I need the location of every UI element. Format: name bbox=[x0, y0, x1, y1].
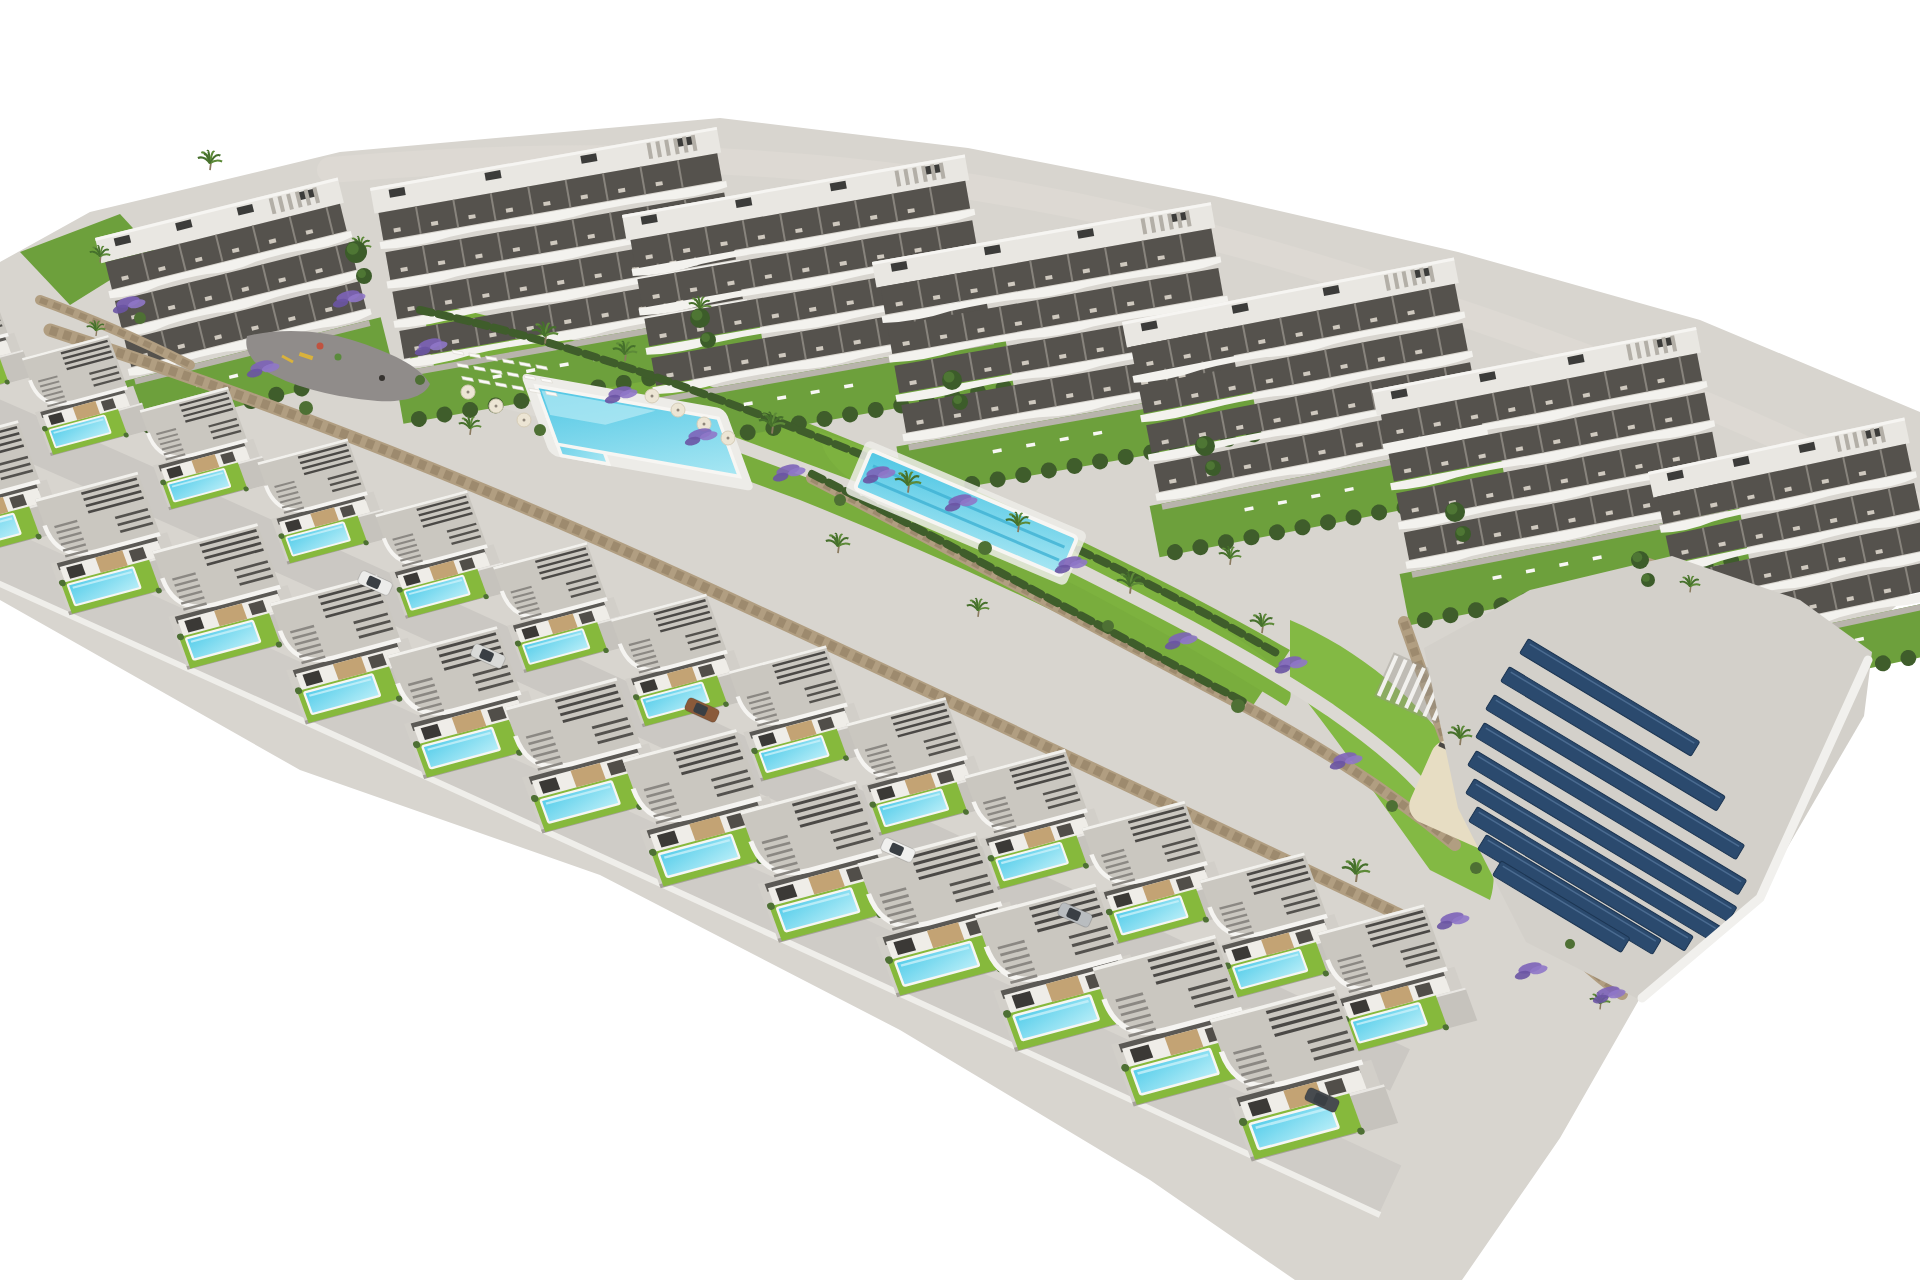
palm-trunk bbox=[545, 336, 546, 343]
tree bbox=[1195, 436, 1215, 456]
tree bbox=[1631, 551, 1649, 569]
palm-trunk bbox=[1262, 626, 1263, 633]
shrub bbox=[1102, 620, 1114, 632]
play-equipment bbox=[335, 354, 342, 361]
tree-highlight bbox=[347, 243, 359, 255]
tree bbox=[345, 241, 367, 263]
parasol bbox=[489, 399, 503, 413]
aerial-site-render bbox=[0, 0, 1920, 1280]
tree-highlight bbox=[953, 395, 962, 404]
palm-trunk bbox=[100, 257, 101, 263]
tree-highlight bbox=[701, 333, 710, 342]
tree-highlight bbox=[1197, 438, 1208, 449]
tree bbox=[1455, 526, 1471, 542]
shrub bbox=[415, 375, 425, 385]
palm-trunk bbox=[772, 426, 773, 433]
palm-trunk bbox=[1600, 1004, 1601, 1010]
palm-trunk bbox=[210, 163, 211, 170]
tree-highlight bbox=[1642, 574, 1650, 582]
parasol-pole bbox=[523, 419, 526, 422]
shrub bbox=[1386, 800, 1398, 812]
tree-highlight bbox=[692, 310, 703, 321]
shrub bbox=[299, 401, 313, 415]
render-viewport: Aerial 3D render — residential developme… bbox=[0, 0, 1920, 1280]
palm-trunk bbox=[1690, 587, 1691, 593]
parasol bbox=[517, 413, 531, 427]
parasol-pole bbox=[651, 395, 654, 398]
parasol bbox=[645, 389, 659, 403]
parasol-pole bbox=[677, 409, 680, 412]
parasol-pole bbox=[703, 423, 706, 426]
shrub bbox=[978, 541, 992, 555]
tree-highlight bbox=[1206, 461, 1215, 470]
tree bbox=[356, 268, 372, 284]
palm-trunk bbox=[838, 546, 839, 553]
tree-highlight bbox=[1447, 504, 1458, 515]
tree bbox=[942, 370, 962, 390]
parasol-pole bbox=[467, 391, 470, 394]
tree bbox=[1445, 502, 1465, 522]
palm-trunk bbox=[625, 354, 626, 361]
palm-trunk bbox=[1356, 874, 1357, 882]
tree-highlight bbox=[1456, 527, 1465, 536]
palm-trunk bbox=[1018, 525, 1019, 532]
tree-highlight bbox=[1632, 552, 1642, 562]
tree bbox=[700, 332, 716, 348]
tree bbox=[952, 394, 968, 410]
tree-highlight bbox=[357, 269, 366, 278]
shrub bbox=[1231, 699, 1245, 713]
palm-trunk bbox=[1130, 586, 1131, 593]
palm-trunk bbox=[908, 485, 909, 492]
shrub bbox=[834, 494, 846, 506]
shrub bbox=[134, 312, 146, 324]
tree bbox=[1205, 460, 1221, 476]
parasol bbox=[721, 431, 735, 445]
tree bbox=[690, 308, 710, 328]
person bbox=[379, 375, 385, 381]
shrub bbox=[1565, 939, 1575, 949]
shrub bbox=[1470, 862, 1482, 874]
palm-trunk bbox=[1460, 738, 1461, 745]
palm-trunk bbox=[470, 428, 471, 434]
play-equipment bbox=[317, 343, 324, 350]
palm-trunk bbox=[1230, 558, 1231, 564]
tree bbox=[1641, 573, 1655, 587]
parasol bbox=[461, 385, 475, 399]
parasol-pole bbox=[495, 405, 498, 408]
parasol-pole bbox=[727, 437, 730, 440]
parasol bbox=[671, 403, 685, 417]
palm-trunk bbox=[96, 331, 97, 336]
tree-highlight bbox=[944, 372, 955, 383]
shrub bbox=[534, 424, 546, 436]
palm-trunk bbox=[978, 610, 979, 616]
